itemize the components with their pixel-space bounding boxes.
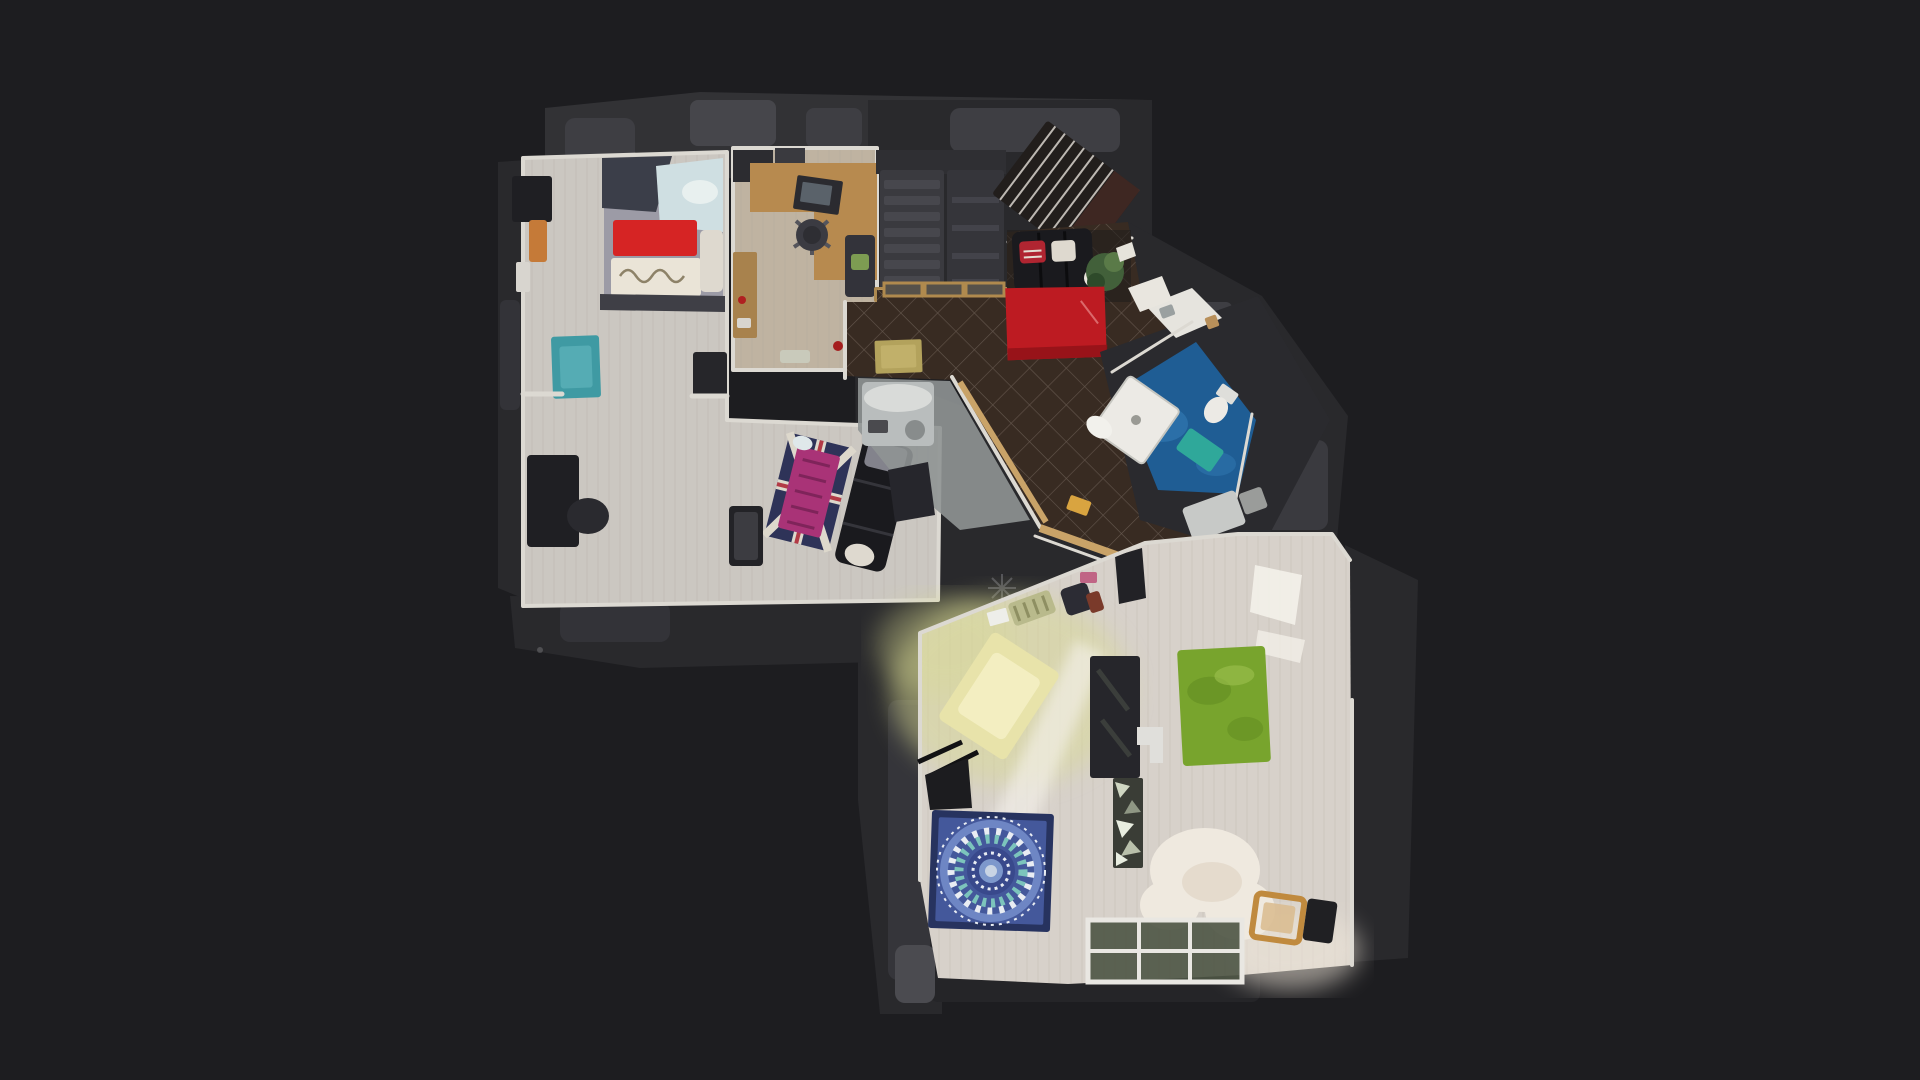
partition-pane	[966, 283, 1004, 296]
bed-foot-frame	[600, 294, 725, 312]
dark-storage-item	[888, 462, 935, 522]
step	[884, 244, 940, 253]
step	[884, 180, 940, 189]
dark-floor-item	[1302, 898, 1338, 944]
floorplan-canvas[interactable]	[0, 0, 1920, 1080]
teal-rug-center	[559, 345, 592, 388]
clutter-green	[851, 254, 869, 270]
partition-pane	[884, 283, 922, 296]
shelf-white-item	[737, 318, 751, 328]
bed-quilt	[611, 258, 701, 296]
floor-red-item	[833, 341, 843, 351]
red-rug	[1003, 283, 1110, 364]
doorway-gap	[1115, 548, 1146, 604]
mandala-rug	[928, 810, 1054, 932]
step	[884, 212, 940, 221]
laptop-screen	[800, 182, 832, 206]
laptop	[793, 175, 843, 215]
sofa-white-pillow	[1051, 240, 1076, 262]
shelf-red-item	[738, 296, 746, 304]
white-shelf-item	[516, 262, 530, 292]
coffee-table-top	[734, 512, 758, 560]
mirror-mosaic-cabinet	[1113, 778, 1143, 868]
machine-panel	[868, 420, 888, 433]
dark-dresser-mid	[693, 352, 727, 396]
floor-white-green-bits	[780, 350, 810, 363]
ghost-blob	[500, 300, 520, 410]
bed-red-runner	[613, 220, 697, 256]
desk-chair	[567, 498, 609, 534]
roof-noise-blob	[690, 100, 776, 146]
pillow-highlight	[682, 180, 718, 204]
rug-base	[1177, 646, 1271, 766]
machine-top-sheen	[864, 384, 932, 412]
chair-seat-center	[803, 226, 821, 244]
double-bed	[600, 156, 725, 312]
black-dresser	[512, 176, 552, 222]
orange-cabinet	[529, 220, 547, 262]
pink-item	[1080, 572, 1097, 583]
roof-noise-blob	[806, 108, 862, 148]
step	[884, 228, 940, 237]
bed-side-pillow	[700, 230, 723, 292]
floor-windows	[1088, 920, 1242, 982]
mat-center	[881, 344, 917, 368]
tv-sideboard	[1090, 656, 1140, 778]
ghost-blob	[560, 602, 670, 642]
machine-drum	[905, 420, 925, 440]
black-desk	[527, 455, 579, 547]
stair-box-2	[947, 170, 1004, 296]
sheepskin-shade	[1182, 862, 1242, 902]
gold-door-mat	[874, 339, 922, 374]
step	[884, 196, 940, 205]
green-rug	[1177, 646, 1271, 766]
scan-speck	[537, 647, 543, 653]
fringe-living-right	[1345, 545, 1418, 962]
chair-seat	[1260, 902, 1296, 934]
ghost-chair	[895, 945, 935, 1003]
partition-pane	[925, 283, 963, 296]
step	[884, 260, 940, 269]
glass-partition	[884, 283, 1004, 296]
living-room	[875, 534, 1360, 990]
